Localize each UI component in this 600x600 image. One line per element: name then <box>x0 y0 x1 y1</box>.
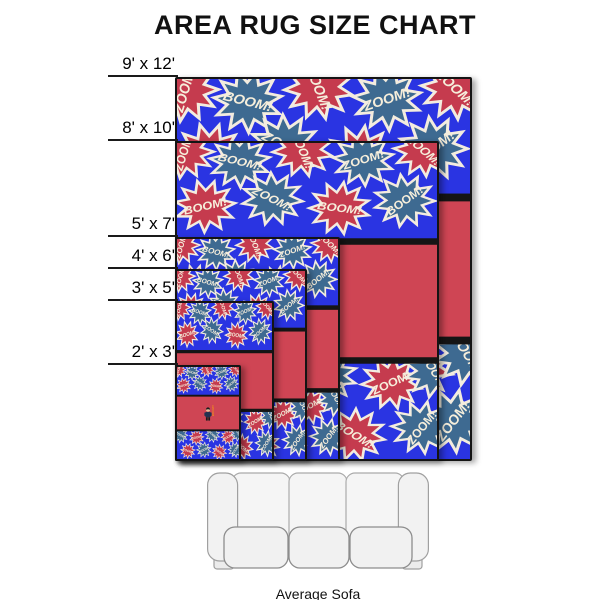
rug-size-label-2x3: 2' x 3' <box>108 341 178 365</box>
rug-pattern: ZOOM!BOOM!BOOM!ZOOM!ZOOM!BOOM!ZOOM!BOOM!… <box>177 367 239 459</box>
page-title: AREA RUG SIZE CHART <box>30 10 600 41</box>
svg-text:BOOM!!: BOOM!! <box>211 405 215 416</box>
rug-size-label-4x6: 4' x 6' <box>108 245 178 269</box>
sofa-seat-cushion-right <box>350 527 412 568</box>
rug-size-label-8x10: 8' x 10' <box>108 117 178 141</box>
rug-size-label-9x12: 9' x 12' <box>108 53 178 77</box>
sofa-illustration <box>207 472 429 572</box>
rug-size-chart-page: AREA RUG SIZE CHART ZOOM!BOOM!BOOM!ZOOM!… <box>0 0 600 600</box>
rug-2x3: ZOOM!BOOM!BOOM!ZOOM!ZOOM!BOOM!ZOOM!BOOM!… <box>175 365 241 461</box>
sofa: Average Sofa <box>207 472 429 600</box>
sofa-seat-cushion-left <box>224 527 288 568</box>
rug-size-label-5x7: 5' x 7' <box>108 213 178 237</box>
rug-size-label-3x5: 3' x 5' <box>108 277 178 301</box>
sofa-seat-cushion-middle <box>289 527 349 568</box>
sofa-label: Average Sofa <box>207 586 429 600</box>
